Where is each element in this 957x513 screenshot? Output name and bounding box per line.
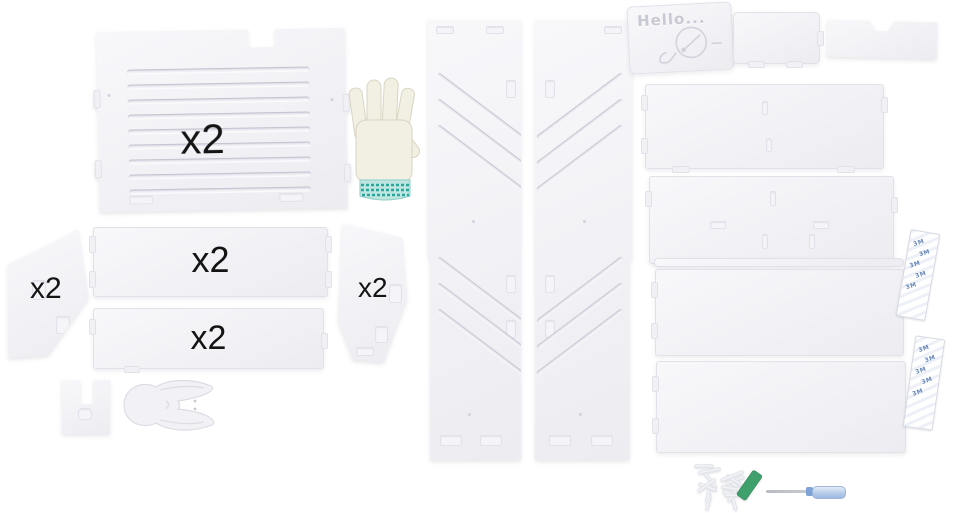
tab (651, 282, 658, 298)
slot-mark (591, 435, 613, 446)
diagonal-groove-group (621, 72, 622, 73)
tape-strip: 3M3M3M3M3M (896, 229, 941, 321)
slat-groove (128, 96, 310, 104)
diagonal-groove (536, 124, 623, 191)
qty-label-slatted: x2 (180, 118, 225, 161)
dot (108, 94, 111, 97)
tape-strip: 3M3M3M3M3M (903, 335, 946, 430)
u-bracket-face (62, 380, 110, 434)
shelf-bar-bottom: x2 (93, 308, 324, 369)
slot-mark (604, 26, 622, 34)
kit-parts-photo: x2 x2 x2 (0, 0, 957, 513)
wide-shelf-panel-4 (656, 361, 906, 453)
small-panel-with-tabs (733, 12, 820, 64)
hello-top-panel: Hello... (626, 1, 734, 74)
wide-shelf-panel-2 (649, 176, 894, 264)
slot-mark (813, 221, 829, 229)
work-glove (346, 74, 426, 204)
small-panel-with-notch (827, 20, 938, 60)
tape-brand-text: 3M (911, 383, 935, 397)
slatted-back-panel: x2 (96, 28, 347, 212)
slot-mark (78, 408, 92, 420)
slot-mark (762, 234, 768, 249)
tab (325, 271, 332, 288)
tab (786, 61, 803, 68)
qty-label-right-corner: x2 (358, 274, 388, 302)
left-corner-panel: x2 (4, 228, 90, 368)
tab (95, 160, 102, 178)
slot-mark (770, 191, 776, 206)
tall-side-panel-left (428, 20, 521, 460)
tab (641, 138, 648, 154)
tab (672, 166, 690, 173)
screwdriver-shaft (766, 490, 808, 493)
tab (89, 319, 96, 335)
slot-mark (279, 193, 303, 202)
slot-mark (766, 138, 772, 152)
slot-mark (62, 349, 80, 358)
slot-mark (545, 275, 555, 293)
thin-strip (654, 258, 904, 267)
slot-mark (710, 221, 726, 229)
tall-side-panel-right-face (535, 20, 632, 460)
tab (645, 191, 652, 207)
tall-side-panel-right (535, 20, 632, 460)
tape-brand-text: 3M (912, 234, 936, 248)
diagonal-groove-group (621, 256, 622, 257)
rabbit-shaped-piece (116, 376, 218, 434)
slot-mark (129, 195, 153, 204)
u-bracket (62, 380, 110, 434)
tab (891, 197, 898, 213)
dot (583, 220, 586, 223)
tab (817, 31, 824, 46)
qty-label-bar-bottom: x2 (191, 321, 227, 355)
tab (881, 97, 888, 113)
slot-mark (56, 316, 70, 334)
tab (325, 236, 332, 253)
tab (89, 271, 96, 288)
slot-mark (486, 26, 504, 34)
tab (837, 166, 855, 173)
qty-label-left-corner: x2 (30, 274, 62, 304)
tall-side-panel-left-face (428, 20, 521, 460)
slot-mark (809, 234, 815, 249)
tab (93, 90, 100, 108)
tape-brand-text: 3M (909, 256, 933, 270)
small-panel-with-notch-face (827, 20, 938, 60)
tab (321, 333, 328, 349)
qty-label-bar-top: x2 (191, 242, 229, 278)
screwdriver (766, 484, 846, 498)
tab (652, 376, 659, 392)
tape-brand-text: 3M (905, 278, 929, 292)
slot-mark (480, 435, 502, 446)
slot-mark (436, 26, 454, 34)
slot-mark (440, 435, 462, 446)
slot-mark (545, 80, 555, 98)
diagonal-groove (536, 308, 623, 375)
slat-groove (127, 81, 309, 89)
screwdriver-handle (812, 486, 846, 499)
slot-mark (506, 80, 516, 98)
dot (579, 413, 582, 416)
tab (89, 236, 96, 253)
wide-shelf-panel-1 (645, 84, 884, 169)
dot (472, 220, 475, 223)
clock-hand-doodle (627, 2, 733, 73)
wide-shelf-panel-3 (655, 269, 904, 356)
tab (651, 323, 658, 339)
tab (652, 418, 659, 434)
shelf-bar-top: x2 (93, 227, 328, 297)
tab (641, 95, 648, 111)
tape-brand-column: 3M3M3M3M3M (897, 230, 940, 320)
right-corner-panel: x2 (336, 222, 410, 364)
slot-mark (506, 275, 516, 293)
diagonal-groove-group (438, 72, 439, 73)
tab (748, 61, 765, 68)
dot (331, 98, 334, 101)
slat-groove (129, 171, 311, 179)
tab (124, 366, 140, 373)
slot-mark (549, 435, 571, 446)
dot (468, 413, 471, 416)
slot-mark (389, 284, 402, 303)
slat-groove (127, 66, 309, 74)
diagonal-groove-group (438, 256, 439, 257)
tape-brand-column: 3M3M3M3M3M (904, 336, 944, 429)
slot-mark (356, 347, 374, 356)
slot-mark (375, 326, 388, 343)
slot-mark (762, 101, 768, 115)
